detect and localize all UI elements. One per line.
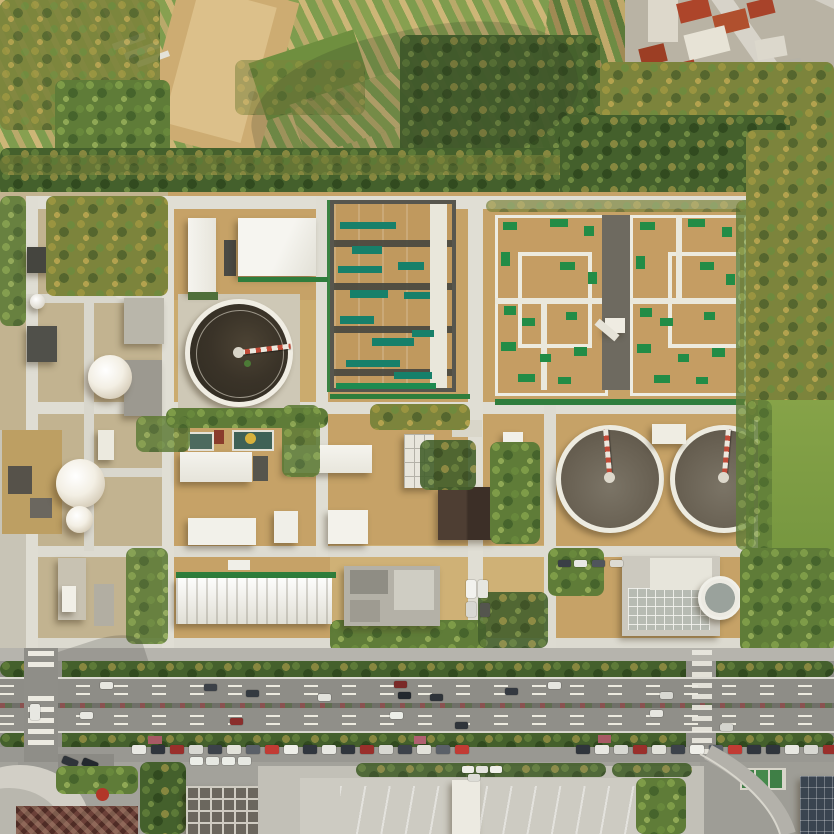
storage-dome-1 <box>88 355 132 399</box>
parked-row-west-car-5 <box>227 745 241 754</box>
basin-mid-strip <box>602 215 630 390</box>
basinA-green-13 <box>518 374 535 382</box>
bldg-north-dark-link <box>224 240 236 276</box>
road-car-14 <box>455 722 468 729</box>
trees-south-2 <box>478 592 548 648</box>
parked-row-east-car-13 <box>823 745 834 754</box>
trees-north-hedgerow <box>486 200 746 212</box>
basin-teal-strip-1 <box>340 222 396 229</box>
road-car-2 <box>204 684 217 691</box>
office-car-1 <box>558 560 571 567</box>
basinB-green-8 <box>660 318 673 326</box>
facility-car-3 <box>466 602 476 617</box>
basinB-green-5 <box>700 262 714 270</box>
basin-teal-strip-6 <box>404 292 430 299</box>
basinA-green-5 <box>560 262 575 270</box>
parked-row-east-car-11 <box>785 745 799 754</box>
clarifier1-hub <box>233 347 244 358</box>
stall-green-roof-2 <box>756 770 768 788</box>
office-building-m1 <box>180 452 252 482</box>
white-car-cluster-2 <box>476 766 488 773</box>
basinA-green-1 <box>503 222 517 230</box>
basin-teal-strip-8 <box>372 338 414 346</box>
left-edge-trees <box>0 196 26 326</box>
basinA-green-3 <box>584 226 594 236</box>
sports-court-small <box>188 432 214 451</box>
clarifier1-green-dot <box>244 360 251 367</box>
industrial-dark-2 <box>30 498 52 518</box>
aeration-basin-white-walk <box>430 204 447 388</box>
industrial-white-tower <box>98 430 114 460</box>
office-car-3 <box>592 560 605 567</box>
parked-row-depot-car-1 <box>206 757 219 765</box>
road-car-12 <box>230 718 243 725</box>
right-grass-trees <box>746 400 772 565</box>
parked-row-east-car-4 <box>652 745 666 754</box>
road-car-9 <box>548 682 561 689</box>
brown-roof-building <box>438 487 496 540</box>
trees-dome-patch <box>136 416 190 452</box>
basinA-green-14 <box>558 377 571 384</box>
aerial-photo-wastewater-plant <box>0 0 834 834</box>
basinB-green-14 <box>696 377 708 384</box>
parked-row-west-car-7 <box>265 745 279 754</box>
parked-row-east-car-10 <box>766 745 780 754</box>
white-car-cluster-1 <box>462 766 474 773</box>
basinA-green-8 <box>522 318 535 326</box>
admin-office-rotunda <box>698 576 742 620</box>
basin-teal-strip-3 <box>338 266 382 273</box>
basin-teal-strip-11 <box>394 372 432 379</box>
clarifier-pump-hut <box>652 424 686 444</box>
stall-green-roof-3 <box>770 770 782 788</box>
parked-row-east-car-8 <box>728 745 742 754</box>
basinB-green-11 <box>678 354 689 362</box>
parked-row-east-car-5 <box>671 745 685 754</box>
basinA-green-4 <box>501 252 510 266</box>
road-car-10 <box>660 692 673 699</box>
clarifier3-hub <box>718 472 729 483</box>
parked-row-west-car-8 <box>284 745 298 754</box>
parked-row-east-car-1 <box>595 745 609 754</box>
road-car-16 <box>720 724 733 731</box>
depot-hedge-2 <box>612 763 692 777</box>
facility-car-4 <box>480 603 490 617</box>
hedge-south-pink-1 <box>148 736 162 744</box>
parked-row-east-car-7 <box>709 745 723 754</box>
trees-northwest <box>46 196 168 296</box>
membrane-basin-b-cross <box>630 298 741 304</box>
basinB-green-13 <box>654 375 670 383</box>
parked-row-west-car-2 <box>170 745 184 754</box>
building-m5 <box>328 510 368 544</box>
parked-row-west-car-15 <box>417 745 431 754</box>
basinB-green-10 <box>637 344 651 353</box>
white-car-cluster-4 <box>468 774 480 781</box>
basinB-green-4 <box>636 256 645 269</box>
road-car-6 <box>398 692 411 699</box>
basin-teal-strip-9 <box>412 330 434 337</box>
road-car-3 <box>246 690 259 697</box>
parked-row-west-car-14 <box>398 745 412 754</box>
right-strip-trees-bottom <box>740 548 834 652</box>
road-car-4 <box>318 694 331 701</box>
gray-complex-dark-1 <box>350 570 388 594</box>
stall-green-roof-1 <box>742 770 754 788</box>
basin-teal-strip-5 <box>350 290 388 298</box>
turning-car <box>30 704 40 720</box>
depot-yard-markings <box>340 786 640 834</box>
hedge-basin-central <box>330 394 470 399</box>
road-car-5 <box>394 681 407 688</box>
zebra-crossing-left-1 <box>28 651 54 667</box>
satellite-dish-1 <box>30 294 45 309</box>
parked-row-east-car-2 <box>614 745 628 754</box>
white-hut-south <box>228 560 250 570</box>
parked-row-west-car-10 <box>322 745 336 754</box>
trees-column-2 <box>490 442 540 544</box>
trees-column-1 <box>282 405 320 477</box>
basinB-green-7 <box>640 308 652 317</box>
parked-row-west-car-12 <box>360 745 374 754</box>
road-car-13 <box>390 712 403 719</box>
bldg-north-1-hedge <box>188 292 218 300</box>
bldg-north-1 <box>188 218 216 292</box>
trees-around-brown-building <box>420 440 476 490</box>
basinA-green-9 <box>566 312 577 320</box>
hedge-basins-south <box>495 399 745 405</box>
basin-teal-strip-7 <box>340 316 374 324</box>
basin-teal-strip-10 <box>346 360 400 367</box>
office-car-2 <box>574 560 587 567</box>
membrane-basin-a-walk-v <box>541 300 547 390</box>
clarifier2-hub <box>604 472 615 483</box>
building-m3 <box>188 518 256 545</box>
checker-roof-building <box>16 806 138 834</box>
red-shed <box>214 430 224 444</box>
parked-row-depot-car-2 <box>222 757 235 765</box>
industrial-dark-1 <box>8 466 32 494</box>
right-strip-trees-top <box>746 130 834 420</box>
bldg-north-2 <box>238 218 316 276</box>
gridroof-building <box>186 786 258 834</box>
parked-row-west-car-13 <box>379 745 393 754</box>
basinB-green-9 <box>704 312 715 320</box>
facility-car-2 <box>478 580 488 598</box>
office-car-4 <box>610 560 623 567</box>
trees-row-2 <box>370 404 470 430</box>
parked-row-west-car-16 <box>436 745 450 754</box>
basin-hedge-bottom <box>336 383 436 389</box>
basinA-green-12 <box>574 347 587 356</box>
basinA-green-2 <box>550 219 568 227</box>
parked-row-west-car-9 <box>303 745 317 754</box>
parked-row-east-car-6 <box>690 745 704 754</box>
membrane-basin-b-walk-v <box>676 215 682 300</box>
gray-building-1 <box>124 298 164 344</box>
sports-court-circle <box>245 433 256 444</box>
road-car-1 <box>100 682 113 689</box>
dark-building-3 <box>27 326 57 362</box>
basinB-green-6 <box>726 274 735 285</box>
bldg-north-2-hedge <box>238 277 328 282</box>
parked-row-west-car-11 <box>341 745 355 754</box>
zebra-crossing-right <box>692 650 712 758</box>
basinB-green-3 <box>722 227 732 237</box>
parked-row-east-car-9 <box>747 745 761 754</box>
village-apartment-block <box>648 0 678 42</box>
gray-complex-light <box>394 570 434 610</box>
parked-row-west-car-0 <box>132 745 146 754</box>
parked-row-west-car-4 <box>208 745 222 754</box>
basinB-green-1 <box>640 222 655 230</box>
storage-dome-small <box>66 506 93 533</box>
basinA-green-10 <box>501 342 516 351</box>
parked-row-west-car-1 <box>151 745 165 754</box>
left-south-tower <box>62 586 76 612</box>
road-car-11 <box>80 712 93 719</box>
basinA-green-6 <box>588 272 597 284</box>
solar-panel-roof <box>800 776 834 834</box>
parked-row-east-car-12 <box>804 745 818 754</box>
parked-row-depot-car-0 <box>190 757 203 765</box>
depot-white-structure <box>452 780 480 834</box>
trees-bottom-2 <box>636 778 686 834</box>
trees-south-3 <box>548 548 604 596</box>
plaza-red-sculpture <box>96 788 109 801</box>
parked-row-west-car-17 <box>455 745 469 754</box>
road-car-15 <box>650 710 663 717</box>
gray-complex-dark-2 <box>350 600 380 622</box>
parked-row-west-car-6 <box>246 745 260 754</box>
basin-teal-strip-4 <box>398 262 424 270</box>
storage-dome-2 <box>56 459 105 508</box>
basinB-green-2 <box>688 219 705 227</box>
road-car-8 <box>505 688 518 695</box>
membrane-basin-a-cross <box>495 298 602 304</box>
left-south-building-2 <box>94 584 114 626</box>
trees-bottom-1 <box>140 762 186 834</box>
building-m4 <box>274 511 298 543</box>
basinA-green-7 <box>504 306 516 315</box>
parked-row-east-car-3 <box>633 745 647 754</box>
facility-car-1 <box>466 580 476 598</box>
basinA-green-11 <box>540 354 551 362</box>
hedge-south-pink-3 <box>598 735 611 743</box>
parked-row-depot-car-3 <box>238 757 251 765</box>
warehouse <box>176 578 332 624</box>
parked-row-west-car-3 <box>189 745 203 754</box>
parked-row-east-car-0 <box>576 745 590 754</box>
office-building-m1-dark <box>253 456 268 481</box>
basin-teal-strip-2 <box>352 246 382 254</box>
white-car-cluster-3 <box>490 766 502 773</box>
basinB-green-12 <box>712 348 725 357</box>
hedge-south-pink-2 <box>414 736 426 744</box>
road-car-7 <box>430 694 443 701</box>
trees-left-column <box>126 548 168 644</box>
